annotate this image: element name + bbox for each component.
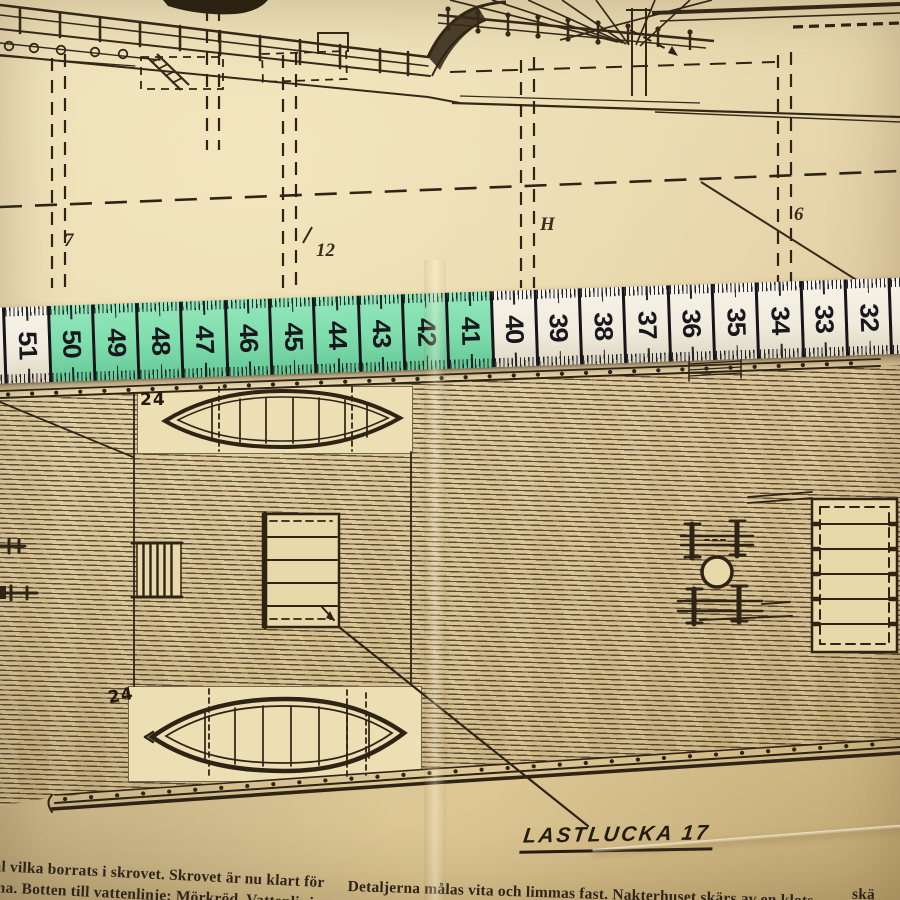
tape-number: 43 [366,319,396,348]
tape-cell-48: 48 [135,302,182,379]
tape-cell-33: 33 [799,280,846,357]
tape-cell-50: 50 [47,305,94,382]
tape-cell-51: 51 [2,306,49,383]
tape-cell-36: 36 [666,284,713,361]
lower-lifeboat [145,689,404,779]
tape-number: 44 [322,320,352,349]
tape-number: 50 [56,329,86,358]
tape-cell-37: 37 [622,286,669,363]
tape-cell-43: 43 [356,294,403,371]
tape-number: 33 [809,304,839,333]
tape-cell-40: 40 [489,290,536,367]
tape-number: 47 [189,324,219,353]
tape-number: 48 [145,326,175,355]
deck-plan-linework [0,0,900,900]
companionway-grating [132,543,182,597]
tape-number: 46 [233,323,263,352]
tape-cell-39: 39 [534,288,581,365]
tape-cell-35: 35 [711,283,758,360]
tape-number: 37 [632,310,662,339]
tape-cell-41: 41 [445,291,492,368]
tape-number: 41 [455,316,485,345]
tape-cell-38: 38 [578,287,625,364]
paper-crease-vertical [424,260,446,900]
tape-number: 32 [853,302,883,331]
tape-cell-32: 32 [843,278,890,355]
tape-number: 34 [765,305,795,334]
boat-label-upper: 24 [140,390,166,410]
photo-of-ship-plan: 7 12 H 6 [0,0,900,900]
tape-number: 38 [588,311,618,340]
tape-cell-47: 47 [179,300,226,377]
cargo-hatch-center [263,514,339,627]
tape-number: 40 [499,314,529,343]
cargo-hatch-right [812,499,897,652]
tape-number: 51 [12,330,42,359]
tape-cell-46: 46 [224,299,271,376]
tape-cell-44: 44 [312,296,359,373]
mooring-bitts-upper [681,521,753,558]
tape-cell-34: 34 [755,281,802,358]
tape-number: 36 [676,308,706,337]
hatch-leader-line [339,627,588,826]
tape-number: 39 [543,313,573,342]
tape-number: 35 [720,307,750,336]
mast-hole [702,557,732,587]
tape-cell-49: 49 [91,303,138,380]
upper-lifeboat [165,387,400,451]
tape-cell-45: 45 [268,297,315,374]
cleat-base [0,586,6,599]
tape-cell-31: 31 [888,277,900,354]
tape-number: 45 [278,321,308,350]
printed-instructions-fragment: skä [852,884,876,900]
mooring-bitts-lower [678,586,792,624]
tape-number: 49 [101,327,131,356]
